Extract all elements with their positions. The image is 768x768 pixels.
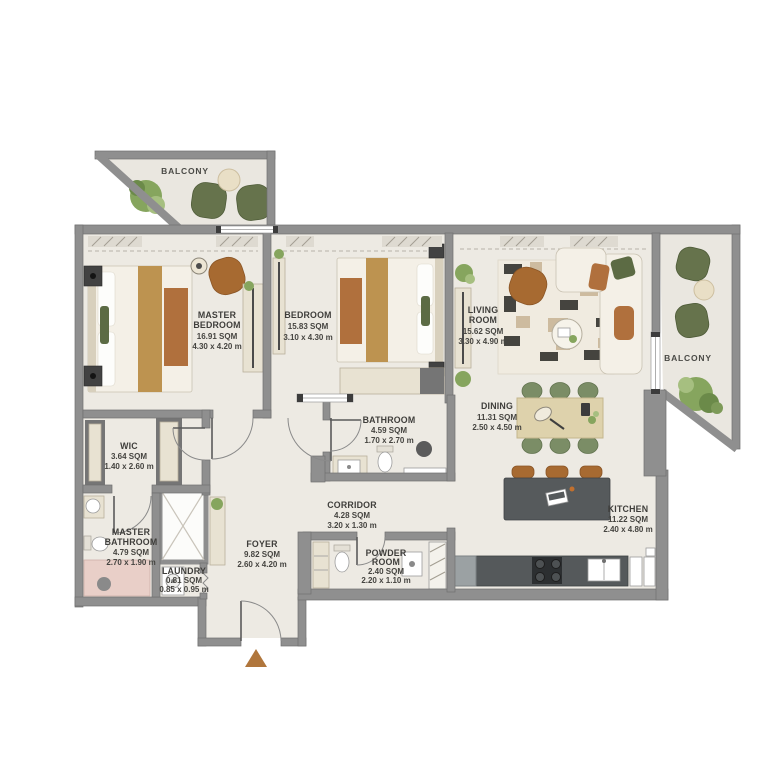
room-dims: 2.20 x 1.10 m xyxy=(361,576,410,585)
bar-stool-icon xyxy=(546,466,568,478)
wardrobe-interior xyxy=(160,422,178,481)
plant-icon xyxy=(244,281,254,291)
room-area: 11.31 SQM xyxy=(477,413,517,422)
room-area: 15.83 SQM xyxy=(288,322,329,331)
outer-wall-right-kitchen xyxy=(656,470,668,600)
window-hatch xyxy=(382,236,442,247)
room-label: MASTER xyxy=(112,527,151,537)
shower-drain-icon xyxy=(97,577,111,591)
room-label: CORRIDOR xyxy=(327,500,377,510)
burner xyxy=(536,573,545,582)
plant-icon xyxy=(593,411,599,417)
dresser-line xyxy=(278,262,280,350)
outer-wall-top xyxy=(75,225,740,234)
room-dims: 2.40 x 4.80 m xyxy=(603,525,652,534)
room-area: 4.79 SQM xyxy=(113,548,149,557)
room-dims: 2.50 x 4.50 m xyxy=(472,423,521,432)
room-label: FOYER xyxy=(246,539,278,549)
room-area: 0.81 SQM xyxy=(166,576,202,585)
room-area: 16.91 SQM xyxy=(197,332,238,341)
balcony-table-icon xyxy=(218,169,240,191)
dining-chair-icon xyxy=(550,437,570,454)
headboard xyxy=(435,258,443,362)
foyer-wall-bottom-left xyxy=(198,638,241,646)
freezer-icon xyxy=(644,557,655,586)
room-label: ROOM xyxy=(372,557,400,567)
bedroom-divider-wall xyxy=(263,233,271,418)
bar-stool-icon xyxy=(512,466,534,478)
floor-plan: BALCONY BALCONY MASTER BEDROOM 16.91 SQM… xyxy=(0,0,768,768)
plant-icon xyxy=(678,377,694,393)
room-dims: 4.30 x 4.20 m xyxy=(192,342,241,351)
master-bedroom-wall-bottom xyxy=(83,410,213,418)
plant-icon xyxy=(211,498,223,510)
plant-icon xyxy=(274,249,284,259)
wic-wall-bottom-a xyxy=(83,485,112,493)
powder-wall-left xyxy=(298,532,311,594)
room-label: BALCONY xyxy=(664,353,712,363)
hamper-icon xyxy=(416,441,432,457)
dining-chair-icon xyxy=(550,383,570,400)
table-item xyxy=(581,403,590,416)
counter-cabinet xyxy=(452,556,476,586)
fridge-icon xyxy=(630,557,642,586)
balcony-left-wall-right xyxy=(267,151,275,231)
plant-icon xyxy=(465,274,475,284)
rug-block xyxy=(560,300,578,310)
burner xyxy=(552,573,561,582)
room-dims: 0.85 x 0.95 m xyxy=(159,585,208,594)
nightstand-knob xyxy=(90,373,96,379)
drain xyxy=(347,465,351,469)
plant-icon xyxy=(711,402,723,414)
window-hatch xyxy=(88,236,142,247)
dining-chair-icon xyxy=(522,437,542,454)
powder-wall-right xyxy=(447,528,455,592)
label-balcony-right: BALCONY xyxy=(664,353,712,363)
plant-icon xyxy=(588,416,596,424)
label-powder-room: POWDER ROOM 2.40 SQM 2.20 x 1.10 m xyxy=(361,548,410,585)
pillar xyxy=(644,390,666,476)
room-area: 4.28 SQM xyxy=(334,511,370,520)
room-label: BATHROOM xyxy=(363,415,416,425)
green-pillow xyxy=(100,306,109,344)
master-bedroom-wall-bottom2 xyxy=(253,410,271,418)
window-hatch xyxy=(286,236,314,247)
rug-block xyxy=(584,350,600,360)
room-dims: 1.40 x 2.60 m xyxy=(104,462,153,471)
toilet-tank xyxy=(377,446,393,452)
room-label: WIC xyxy=(120,441,138,451)
sliding-door-balcony-left xyxy=(216,226,278,233)
wardrobe-rail xyxy=(252,288,254,368)
sink-icon xyxy=(86,499,100,513)
balcony-table-icon xyxy=(694,280,714,300)
entrance-arrow-icon xyxy=(245,649,267,667)
closet xyxy=(313,542,329,588)
label-laundry: LAUNDRY 0.81 SQM 0.85 x 0.95 m xyxy=(159,566,208,594)
bed-runner xyxy=(138,266,162,392)
bed-runner xyxy=(366,258,388,362)
dining-furniture xyxy=(517,383,603,454)
label-corridor: CORRIDOR 4.28 SQM 3.20 x 1.30 m xyxy=(327,500,377,530)
room-area: 11.22 SQM xyxy=(608,515,648,524)
label-balcony-left: BALCONY xyxy=(161,166,209,176)
wardrobe-interior xyxy=(89,424,101,481)
room-label: BEDROOM xyxy=(193,320,240,330)
foyer-wall-right xyxy=(298,597,306,646)
dining-chair-icon xyxy=(522,383,542,400)
toilet-icon xyxy=(335,552,349,572)
bathroom-wall-bottom xyxy=(311,473,455,481)
bar-stool-icon xyxy=(580,466,602,478)
sliding-door-bedroom xyxy=(297,394,353,402)
toilet-icon xyxy=(378,452,392,472)
bed-throw xyxy=(164,288,188,366)
room-label: LAUNDRY xyxy=(162,566,206,576)
outer-wall-left xyxy=(75,225,83,607)
bedroom-living-wall xyxy=(445,233,453,403)
room-label: ROOM xyxy=(469,315,497,325)
room-dims: 2.70 x 1.90 m xyxy=(106,558,155,567)
room-label: DINING xyxy=(481,401,513,411)
dining-chair-icon xyxy=(578,383,598,400)
sofa-throw xyxy=(614,306,634,340)
room-label: BALCONY xyxy=(161,166,209,176)
plant-icon xyxy=(569,335,577,343)
outer-wall-bottom-left xyxy=(75,597,206,606)
room-label: BATHROOM xyxy=(105,537,158,547)
room-label: KITCHEN xyxy=(608,504,649,514)
floor-plan-page: BALCONY BALCONY MASTER BEDROOM 16.91 SQM… xyxy=(0,0,768,768)
window-hatch xyxy=(500,236,544,247)
window-hatch xyxy=(216,236,258,247)
book xyxy=(558,328,570,337)
balcony-right-wall-right xyxy=(732,225,740,449)
drain xyxy=(409,561,415,567)
outer-wall-bottom xyxy=(298,589,668,600)
label-bedroom: BEDROOM 15.83 SQM 3.10 x 4.30 m xyxy=(283,310,332,342)
room-area: 3.64 SQM xyxy=(111,452,147,461)
room-label: MASTER xyxy=(198,310,237,320)
wic-wall-right-a xyxy=(202,410,210,428)
powder-wall-top-b xyxy=(385,532,455,540)
room-label: BEDROOM xyxy=(284,310,331,320)
room-dims: 1.70 x 2.70 m xyxy=(364,436,413,445)
plant-icon xyxy=(455,371,471,387)
dining-chair-icon xyxy=(578,437,598,454)
room-area: 15.62 SQM xyxy=(463,327,504,336)
balcony-left-wall-top xyxy=(95,151,275,159)
toilet-tank xyxy=(84,536,91,550)
kitchen-vent xyxy=(646,548,655,556)
rug-block xyxy=(516,316,530,328)
bed-throw xyxy=(340,278,362,344)
burner xyxy=(552,560,561,569)
green-pillow xyxy=(421,296,430,326)
toilet-tank xyxy=(334,545,350,551)
room-dims: 3.10 x 4.30 m xyxy=(283,333,332,342)
room-area: 2.40 SQM xyxy=(368,567,404,576)
faucet xyxy=(602,559,606,563)
living-window-wall xyxy=(652,233,660,333)
room-area: 9.82 SQM xyxy=(244,550,280,559)
nightstand-knob xyxy=(90,273,96,279)
wardrobe-dark-section xyxy=(420,368,444,394)
foyer-furniture xyxy=(210,497,225,565)
burner xyxy=(536,560,545,569)
window-hatch xyxy=(570,236,618,247)
shaft xyxy=(160,490,206,562)
wic-wall-bottom-b xyxy=(152,485,210,493)
label-kitchen: KITCHEN 11.22 SQM 2.40 x 4.80 m xyxy=(603,504,652,534)
pouf-center xyxy=(196,263,202,269)
sliding-door-balcony-right xyxy=(651,332,660,394)
room-dims: 2.60 x 4.20 m xyxy=(237,560,286,569)
room-dims: 3.30 x 4.90 m xyxy=(458,337,507,346)
room-label: LIVING xyxy=(468,305,499,315)
bowl-icon xyxy=(570,487,575,492)
room-dims: 3.20 x 1.30 m xyxy=(327,521,376,530)
bathroom-wall-right xyxy=(447,395,455,481)
rug-block xyxy=(540,352,558,361)
room-area: 4.59 SQM xyxy=(371,426,407,435)
